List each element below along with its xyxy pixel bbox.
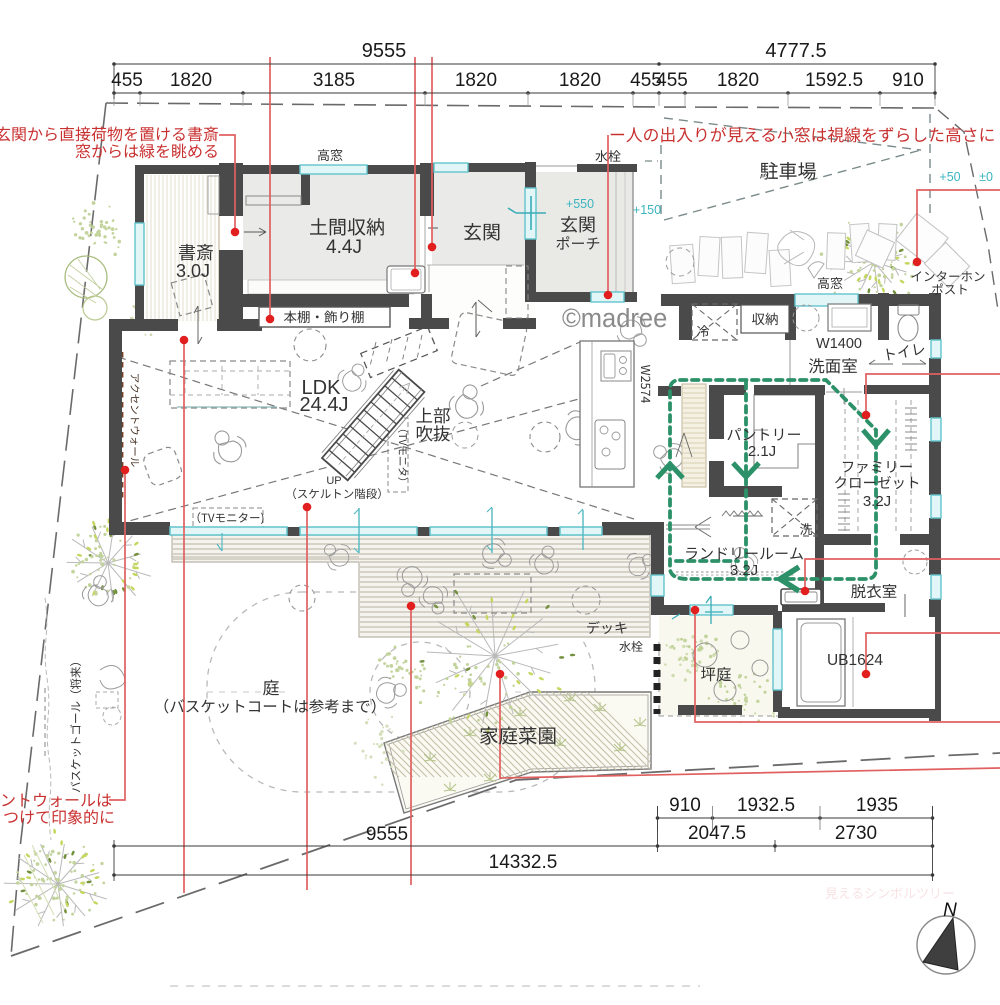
svg-text:910: 910 [669, 795, 701, 816]
svg-text:+50: +50 [939, 170, 960, 184]
svg-text:+150: +150 [633, 203, 661, 217]
svg-text:3.2J: 3.2J [863, 493, 891, 510]
svg-text:1820: 1820 [170, 70, 212, 91]
svg-text:UB1624: UB1624 [827, 652, 883, 669]
svg-text:1592.5: 1592.5 [805, 70, 863, 91]
svg-text:2.1J: 2.1J [748, 443, 776, 460]
svg-text:3185: 3185 [313, 70, 355, 91]
svg-text:1820: 1820 [717, 70, 759, 91]
svg-text:1820: 1820 [559, 70, 601, 91]
svg-text:24.4J: 24.4J [300, 394, 349, 416]
svg-text:910: 910 [892, 70, 924, 91]
svg-text:©madree: ©madree [562, 305, 667, 333]
svg-text:2047.5: 2047.5 [688, 823, 746, 844]
svg-text:±0: ±0 [979, 170, 993, 184]
svg-text:W1400: W1400 [816, 336, 862, 352]
svg-text:4.4J: 4.4J [326, 237, 362, 258]
svg-text:2730: 2730 [835, 823, 877, 844]
svg-text:4777.5: 4777.5 [765, 40, 826, 62]
svg-text:UP: UP [326, 475, 341, 487]
svg-text:455: 455 [111, 70, 143, 91]
svg-text:3.2J: 3.2J [730, 562, 758, 579]
svg-text:+550: +550 [566, 197, 594, 211]
svg-text:3.0J: 3.0J [176, 261, 210, 281]
svg-text:9555: 9555 [366, 824, 408, 845]
svg-text:1932.5: 1932.5 [737, 795, 795, 816]
svg-text:9555: 9555 [362, 40, 407, 62]
svg-text:455: 455 [656, 70, 688, 91]
svg-text:N: N [943, 900, 957, 921]
svg-text:1820: 1820 [455, 70, 497, 91]
svg-text:1935: 1935 [856, 795, 898, 816]
svg-text:14332.5: 14332.5 [489, 852, 558, 873]
